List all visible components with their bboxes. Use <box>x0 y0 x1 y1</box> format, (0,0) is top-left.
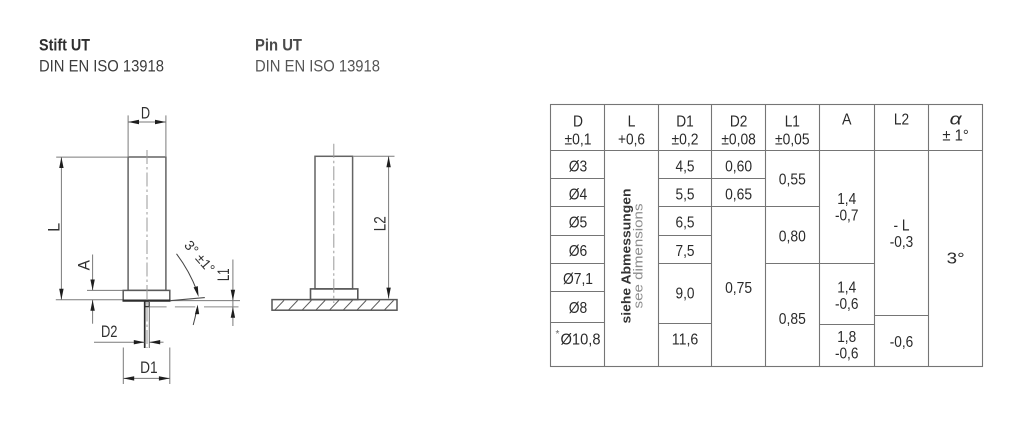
svg-text:A: A <box>842 112 852 129</box>
svg-text:L2: L2 <box>372 216 390 231</box>
svg-text:Ø3: Ø3 <box>569 158 588 175</box>
svg-text:Stift UT: Stift UT <box>39 36 91 55</box>
svg-text:0,60: 0,60 <box>725 158 752 175</box>
svg-text:DIN EN ISO 13918: DIN EN ISO 13918 <box>255 57 380 76</box>
svg-text:3°: 3° <box>947 251 965 268</box>
svg-text:α: α <box>950 109 964 128</box>
svg-text:A: A <box>75 260 93 270</box>
svg-text:D1: D1 <box>676 113 694 130</box>
svg-text:-0,6: -0,6 <box>890 334 914 351</box>
svg-text:Pin UT: Pin UT <box>255 36 303 55</box>
svg-text:4,5: 4,5 <box>676 158 695 175</box>
svg-text:D2: D2 <box>730 113 748 130</box>
svg-text:+0,6: +0,6 <box>618 131 645 148</box>
svg-text:± 1°: ± 1° <box>942 127 969 144</box>
svg-text:Ø7,1: Ø7,1 <box>563 271 593 288</box>
svg-text:D: D <box>141 104 150 122</box>
svg-text:0,65: 0,65 <box>725 186 752 203</box>
svg-text:D2: D2 <box>101 323 118 341</box>
svg-text:- L: - L <box>894 218 910 235</box>
svg-text:Ø6: Ø6 <box>569 243 588 260</box>
svg-text:Ø10,8: Ø10,8 <box>561 332 601 349</box>
svg-text:0,75: 0,75 <box>725 280 752 297</box>
svg-text:L1: L1 <box>215 268 233 281</box>
svg-text:-0,7: -0,7 <box>835 207 859 224</box>
svg-text:1,4: 1,4 <box>837 191 856 208</box>
svg-text:-0,6: -0,6 <box>835 296 859 313</box>
svg-text:11,6: 11,6 <box>672 332 699 349</box>
svg-text:see dimensions: see dimensions <box>631 204 646 309</box>
svg-text:±0,08: ±0,08 <box>721 131 756 148</box>
svg-text:-0,3: -0,3 <box>890 234 914 251</box>
svg-text:-0,6: -0,6 <box>835 346 859 363</box>
svg-text:L1: L1 <box>785 113 800 130</box>
svg-text:D: D <box>573 113 583 130</box>
svg-text:1,8: 1,8 <box>837 329 856 346</box>
svg-text:7,5: 7,5 <box>676 243 695 260</box>
svg-text:D1: D1 <box>140 359 158 377</box>
svg-text:L2: L2 <box>894 112 909 129</box>
svg-text:*: * <box>556 329 560 340</box>
svg-text:DIN EN ISO 13918: DIN EN ISO 13918 <box>39 57 164 76</box>
svg-text:L: L <box>628 113 636 130</box>
svg-text:6,5: 6,5 <box>676 215 695 232</box>
svg-text:Ø8: Ø8 <box>569 300 588 317</box>
svg-text:0,55: 0,55 <box>779 172 806 189</box>
svg-text:L: L <box>46 223 64 232</box>
svg-text:5,5: 5,5 <box>676 186 695 203</box>
svg-text:0,85: 0,85 <box>779 311 806 328</box>
svg-text:9,0: 9,0 <box>676 285 695 302</box>
svg-text:±0,1: ±0,1 <box>565 131 592 148</box>
svg-text:Ø4: Ø4 <box>569 186 588 203</box>
svg-text:1,4: 1,4 <box>837 280 856 297</box>
svg-text:Ø5: Ø5 <box>569 215 588 232</box>
svg-text:±0,2: ±0,2 <box>672 131 699 148</box>
svg-text:0,80: 0,80 <box>779 228 806 245</box>
svg-text:±0,05: ±0,05 <box>775 131 810 148</box>
